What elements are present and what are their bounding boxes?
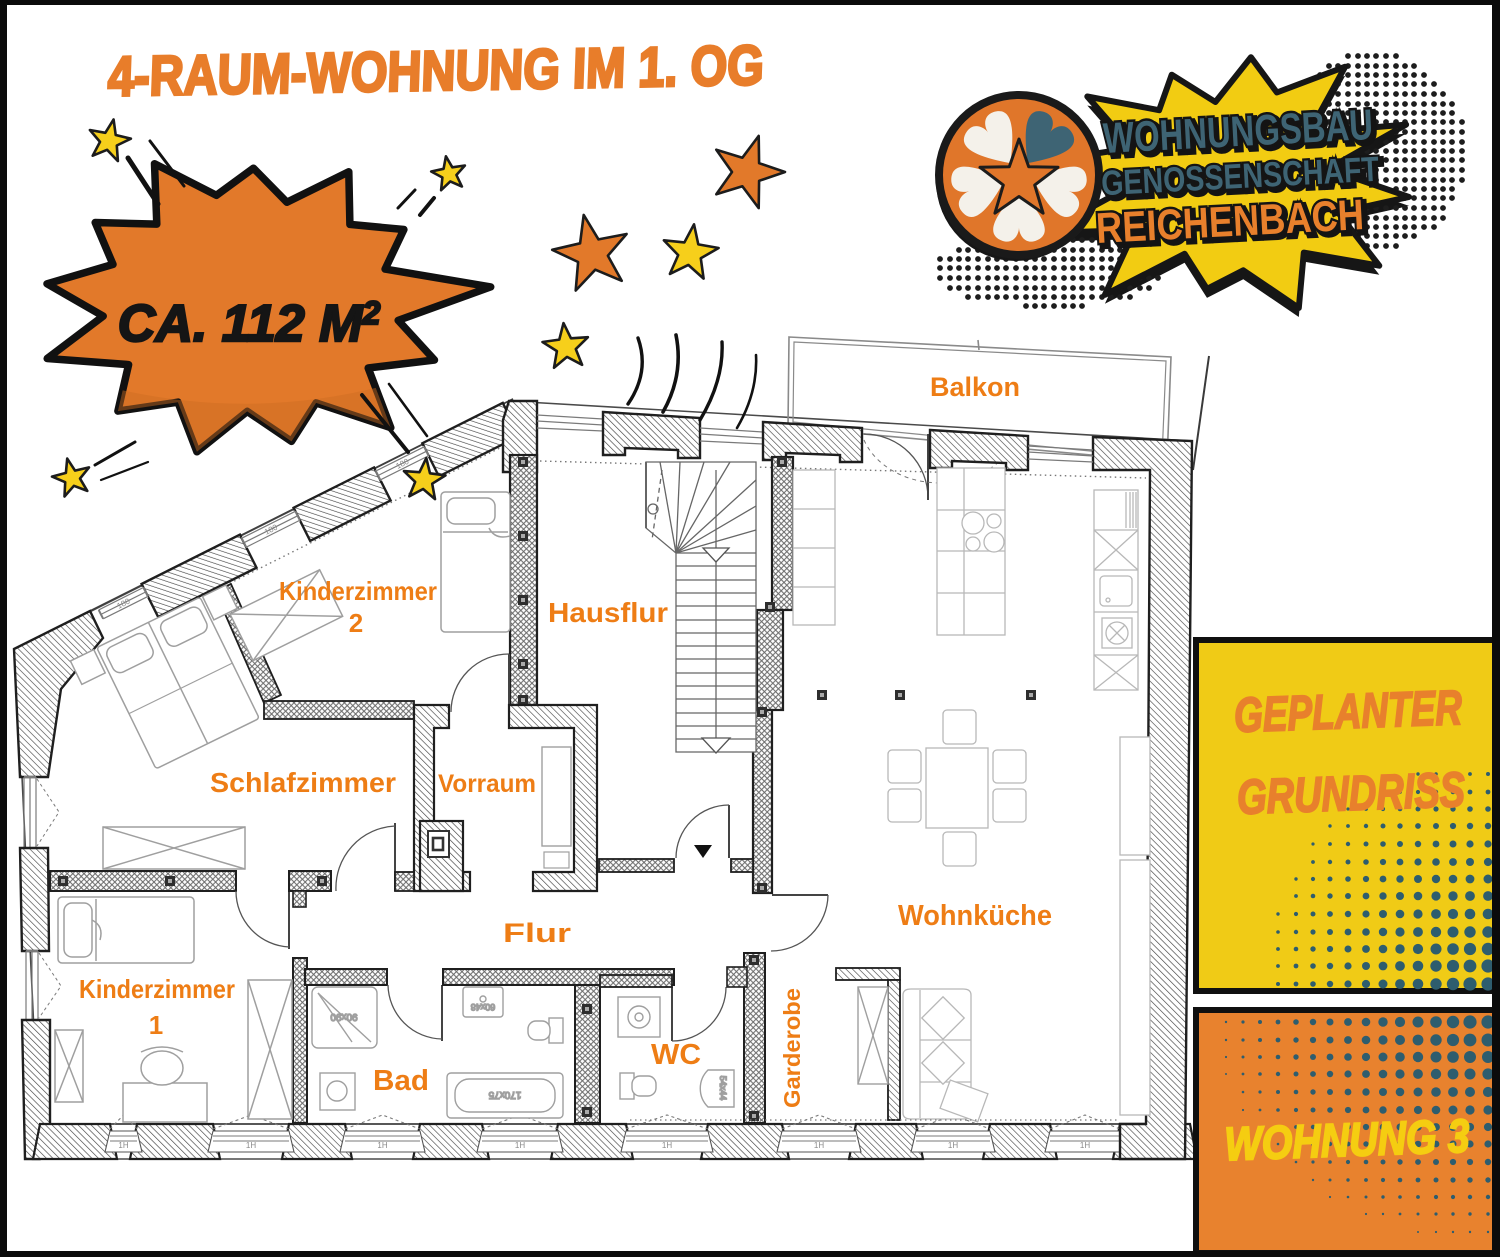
svg-text:90x90: 90x90 <box>330 1011 358 1022</box>
svg-text:Schlafzimmer: Schlafzimmer <box>210 767 396 798</box>
svg-text:1H: 1H <box>246 1141 256 1150</box>
svg-text:Garderobe: Garderobe <box>779 988 805 1108</box>
svg-text:Hausflur: Hausflur <box>548 597 668 628</box>
svg-text:Balkon: Balkon <box>930 372 1020 402</box>
svg-text:GEPLANTER: GEPLANTER <box>1233 681 1463 743</box>
svg-text:1H: 1H <box>814 1141 824 1150</box>
svg-text:Wohnküche: Wohnküche <box>898 900 1052 932</box>
svg-text:WC: WC <box>651 1039 701 1071</box>
svg-text:Flur: Flur <box>503 918 572 948</box>
svg-text:Kinderzimmer: Kinderzimmer <box>79 974 235 1004</box>
svg-text:CA. 112 M2: CA. 112 M2 <box>118 295 381 353</box>
svg-text:2: 2 <box>349 608 363 638</box>
svg-text:54x44: 54x44 <box>718 1076 728 1101</box>
svg-text:1H: 1H <box>118 1141 128 1150</box>
svg-text:60x48: 60x48 <box>471 1002 496 1012</box>
svg-text:Kinderzimmer: Kinderzimmer <box>279 576 437 606</box>
svg-text:1H: 1H <box>515 1141 525 1150</box>
svg-text:1H: 1H <box>948 1141 958 1150</box>
svg-text:1H: 1H <box>1080 1141 1090 1150</box>
svg-text:1H: 1H <box>662 1141 672 1150</box>
svg-text:170x75: 170x75 <box>488 1089 521 1100</box>
svg-text:GRUNDRISS: GRUNDRISS <box>1236 763 1466 825</box>
svg-text:1: 1 <box>149 1010 163 1040</box>
svg-text:4-RAUM-WOHNUNG IM 1. OG: 4-RAUM-WOHNUNG IM 1. OG <box>107 33 765 107</box>
svg-text:Vorraum: Vorraum <box>438 770 536 798</box>
svg-text:Bad: Bad <box>373 1065 429 1097</box>
svg-text:1H: 1H <box>377 1141 387 1150</box>
svg-text:WOHNUNG 3: WOHNUNG 3 <box>1224 1109 1471 1171</box>
